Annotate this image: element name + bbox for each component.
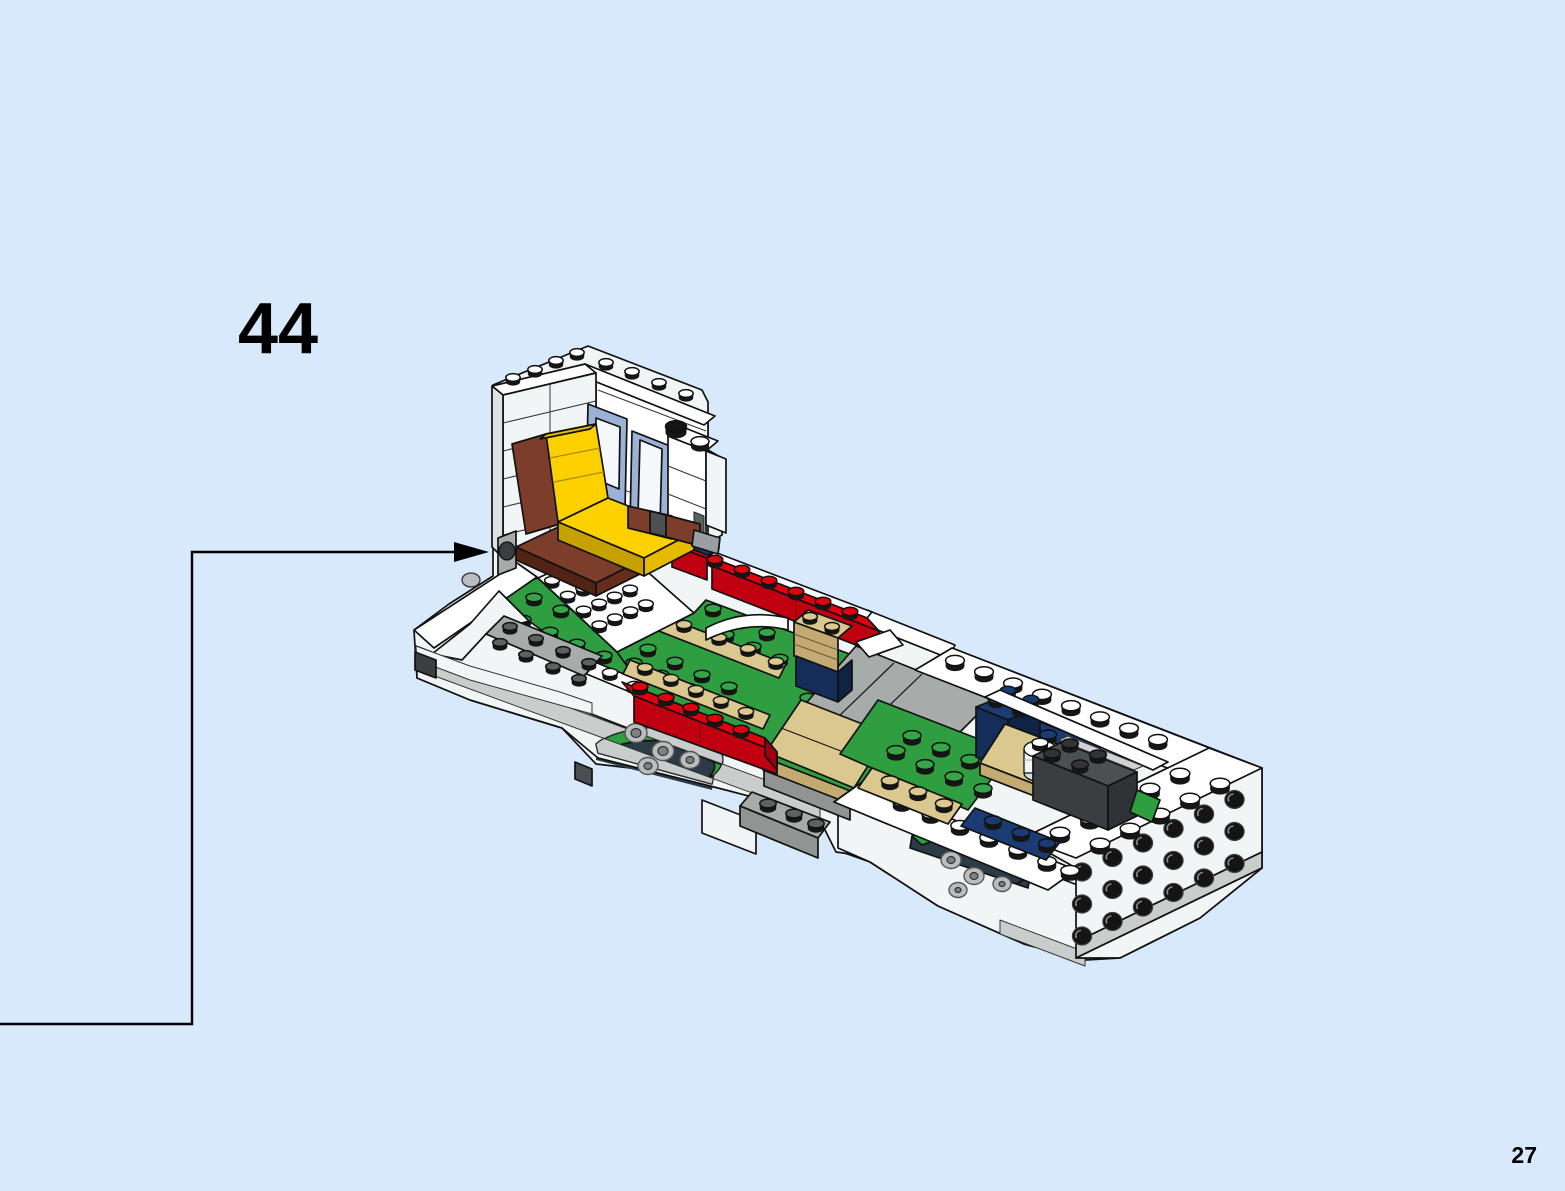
svg-text:44: 44 <box>238 289 318 369</box>
svg-text:27: 27 <box>1511 1142 1537 1168</box>
